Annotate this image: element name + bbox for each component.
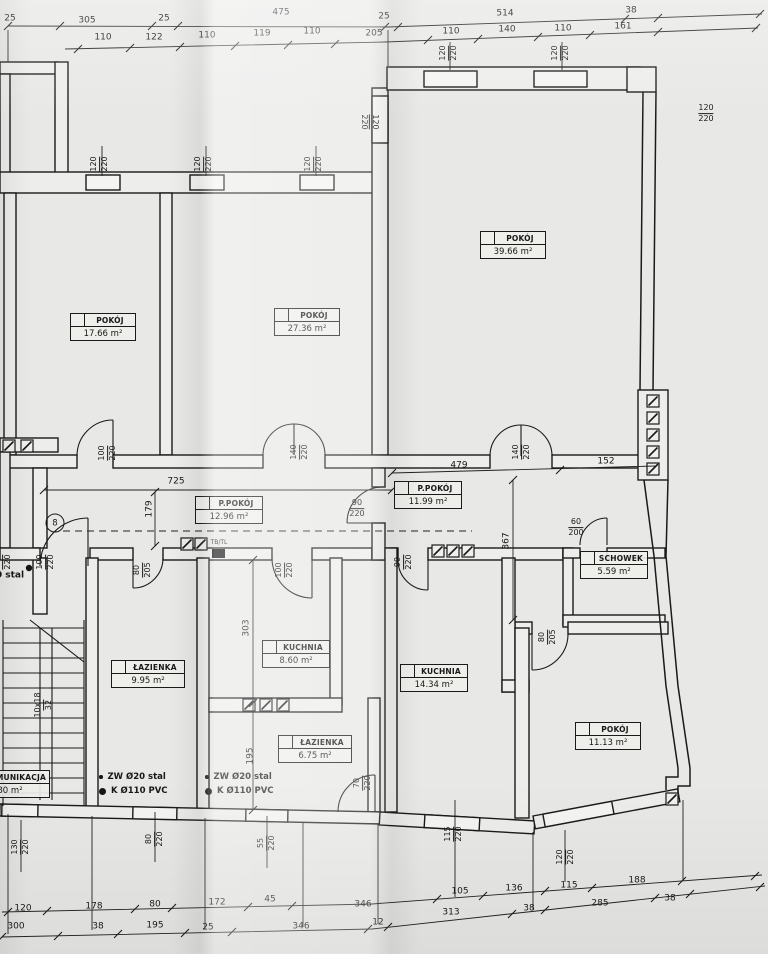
opening-height: 220 (404, 554, 414, 569)
room-name: POKÓJ (590, 723, 640, 735)
dimension-label: 38 (625, 7, 636, 16)
opening-height: 220 (46, 554, 56, 569)
opening-width: 120 (551, 43, 560, 62)
dimension-label: 105 (451, 888, 468, 897)
legend-item: ZW Ø20 stal (205, 770, 274, 784)
room-label-corner-cell (395, 482, 409, 494)
opening-width: 60 (569, 518, 583, 527)
opening-width: 120 (370, 112, 379, 131)
pipe-legend: ZW Ø20 stalK Ø110 PVC (99, 770, 168, 798)
opening-height: 220 (100, 156, 110, 171)
dimension-label: 122 (145, 34, 162, 43)
opening-size-label: 80205 (133, 562, 153, 577)
dimension-label: 161 (614, 23, 631, 32)
dimension-label: 475 (272, 9, 289, 18)
room-label-corner-cell (576, 723, 590, 735)
dimension-label: 313 (442, 909, 459, 918)
room-label-corner-cell (275, 309, 289, 321)
opening-width: 130 (11, 837, 20, 856)
room-label: ŁAZIENKA6.75 m² (278, 735, 352, 763)
room-name: POKÓJ (289, 309, 339, 321)
opening-height: 220 (561, 45, 571, 60)
dimension-label: 45 (264, 896, 275, 905)
opening-size-label: 130220 (11, 837, 31, 856)
room-label: KOMUNIKACJA80 m² (0, 770, 50, 798)
room-name: ŁAZIENKA (293, 736, 351, 748)
legend-item: ZW Ø20 stal (99, 770, 168, 784)
opening-size-label: 100220 (36, 552, 56, 571)
opening-height: 220 (300, 444, 310, 459)
opening-height: 32 (44, 700, 54, 710)
dimension-label: 367 (503, 532, 512, 549)
dimension-label: 110 (554, 25, 571, 34)
dimension-label: 25 (4, 15, 15, 24)
opening-size-label: 70220 (353, 775, 373, 790)
legend-text: K Ø110 PVC (217, 786, 274, 796)
dimension-label: 38 (523, 905, 534, 914)
dimension-label: 303 (243, 619, 252, 636)
opening-size-label: 140220 (290, 442, 310, 461)
dimension-label: 25 (378, 13, 389, 22)
opening-width: 120 (90, 154, 99, 173)
room-label: SCHOWEK5.59 m² (580, 551, 648, 579)
opening-height: 220 (204, 156, 214, 171)
opening-size-label: 120220 (551, 43, 571, 62)
legend-text: ZW Ø20 stal (214, 772, 272, 782)
room-area: 39.66 m² (481, 245, 545, 258)
opening-width: 115 (444, 824, 453, 843)
opening-height: 205 (548, 629, 558, 644)
opening-size-label: 140220 (512, 442, 532, 461)
opening-size-label: 120220 (696, 104, 715, 124)
room-label: P.POKÓJ11.99 m² (394, 481, 462, 509)
room-area: 80 m² (0, 784, 49, 797)
room-label-corner-cell (112, 661, 126, 673)
dimension-label: 346 (354, 901, 371, 910)
room-area: 27.36 m² (275, 322, 339, 335)
opening-size-label: 120220 (439, 43, 459, 62)
room-label: POKÓJ17.66 m² (70, 313, 136, 341)
opening-height: 220 (359, 114, 369, 129)
legend-bullet-icon (205, 788, 212, 795)
opening-width: 80 (145, 832, 154, 846)
opening-size-label: 80205 (538, 629, 558, 644)
dimension-label: 119 (253, 30, 270, 39)
opening-height: 220 (108, 445, 118, 460)
room-label-corner-cell (481, 232, 495, 244)
opening-size-label: 100220 (98, 443, 118, 462)
dimension-label: 479 (450, 462, 467, 471)
room-area: 8.60 m² (263, 654, 329, 667)
legend-text: K Ø110 PVC (111, 786, 168, 796)
dimension-label: 38 (664, 895, 675, 904)
opening-width: 80 (538, 630, 547, 644)
room-area: 14.34 m² (401, 678, 467, 691)
room-area: 9.95 m² (112, 674, 184, 687)
opening-height: 220 (363, 775, 373, 790)
legend-item: K Ø110 PVC (205, 784, 274, 798)
opening-width: 120 (194, 154, 203, 173)
opening-width: 100 (98, 443, 107, 462)
room-label: ŁAZIENKA9.95 m² (111, 660, 185, 688)
opening-width: 80 (133, 563, 142, 577)
opening-height: 220 (155, 831, 165, 846)
stair-step-note: 10x1832 (34, 690, 54, 719)
dimension-label: 80 (149, 901, 160, 910)
room-name: ŁAZIENKA (126, 661, 184, 673)
opening-width: 120 (304, 154, 313, 173)
dimension-label: 346 (292, 923, 309, 932)
opening-height: 220 (454, 826, 464, 841)
opening-size-label: 60200 (568, 518, 583, 538)
dimension-label: 305 (78, 17, 95, 26)
room-label-corner-cell (263, 641, 277, 653)
opening-width: 55 (257, 836, 266, 850)
room-label: POKÓJ39.66 m² (480, 231, 546, 259)
room-name: P.POKÓJ (409, 482, 461, 494)
opening-size-label: 90220 (349, 499, 364, 519)
labels-layer: POKÓJ17.66 m²POKÓJ27.36 m²POKÓJ39.66 m²P… (0, 0, 768, 954)
opening-size-label: 120220 (194, 154, 214, 173)
legend-bullet-icon (99, 775, 103, 779)
room-area: 12.96 m² (196, 510, 262, 523)
room-label: KUCHNIA8.60 m² (262, 640, 330, 668)
room-label: P.POKÓJ12.96 m² (195, 496, 263, 524)
opening-height: 220 (449, 45, 459, 60)
opening-width: 100 (275, 560, 284, 579)
room-name: POKÓJ (85, 314, 135, 326)
opening-height: 220 (314, 156, 324, 171)
room-label-corner-cell (196, 497, 210, 509)
dimension-label: 110 (94, 34, 111, 43)
dimension-label: 152 (597, 458, 614, 467)
dimension-label: 140 (498, 26, 515, 35)
opening-height: 220 (349, 509, 364, 519)
pipe-legend: ZW Ø20 stalK Ø110 PVC (205, 770, 274, 798)
dimension-label: 188 (628, 877, 645, 886)
dimension-label: 25 (158, 15, 169, 24)
room-name: KUCHNIA (415, 665, 467, 677)
opening-size-label: 120220 (359, 112, 379, 131)
opening-width: 100 (36, 552, 45, 571)
room-name: P.POKÓJ (210, 497, 262, 509)
room-area: 11.13 m² (576, 736, 640, 749)
dimension-label: 725 (167, 478, 184, 487)
room-area: 17.66 m² (71, 327, 135, 340)
opening-width: 120 (696, 104, 715, 113)
opening-height: 220 (267, 835, 277, 850)
opening-height: 200 (568, 528, 583, 538)
opening-size-label: 120220 (556, 847, 576, 866)
opening-width: 140 (512, 442, 521, 461)
room-area: 5.59 m² (581, 565, 647, 578)
opening-size-label: 80220 (145, 831, 165, 846)
dimension-label: 179 (146, 500, 155, 517)
dimension-label: 205 (365, 30, 382, 39)
opening-width: 10x18 (34, 690, 43, 719)
opening-width: 70 (353, 776, 362, 790)
dimension-label: 12 (372, 919, 383, 928)
opening-height: 220 (698, 114, 713, 124)
dimension-label: 110 (442, 28, 459, 37)
room-name: KOMUNIKACJA (0, 771, 49, 783)
opening-height: 220 (21, 839, 31, 854)
opening-height: 220 (566, 849, 576, 864)
opening-height: 220 (522, 444, 532, 459)
dimension-label: 110 (303, 28, 320, 37)
opening-width: 120 (439, 43, 448, 62)
dimension-label: 285 (591, 900, 608, 909)
room-name: POKÓJ (495, 232, 545, 244)
axis-marker: 8 (46, 514, 65, 533)
opening-size-label: 120220 (304, 154, 324, 173)
dimension-label: 172 (208, 899, 225, 908)
dimension-label: 110 (198, 32, 215, 41)
annotation-note: Ø50 stal (0, 572, 24, 581)
opening-size-label: 100220 (0, 552, 13, 571)
room-name: KUCHNIA (277, 641, 329, 653)
dimension-label: 136 (505, 885, 522, 894)
opening-size-label: 120220 (90, 154, 110, 173)
opening-width: 120 (556, 847, 565, 866)
opening-width: 90 (394, 555, 403, 569)
room-label: KUCHNIA14.34 m² (400, 664, 468, 692)
dimension-label: 195 (146, 922, 163, 931)
dimension-label: 115 (560, 882, 577, 891)
opening-size-label: 90220 (394, 554, 414, 569)
dimension-label: 300 (7, 923, 24, 932)
room-label: POKÓJ27.36 m² (274, 308, 340, 336)
room-area: 11.99 m² (395, 495, 461, 508)
dimension-label: 120 (14, 905, 31, 914)
legend-item: K Ø110 PVC (99, 784, 168, 798)
room-area: 6.75 m² (279, 749, 351, 762)
dimension-label: 38 (92, 923, 103, 932)
room-label-corner-cell (279, 736, 293, 748)
annotation-note: TB/TL (211, 540, 228, 546)
opening-height: 220 (285, 562, 295, 577)
opening-size-label: 55220 (257, 835, 277, 850)
dimension-label: 514 (496, 10, 513, 19)
opening-size-label: 115220 (444, 824, 464, 843)
opening-size-label: 100220 (275, 560, 295, 579)
legend-bullet-icon (99, 788, 106, 795)
room-label: POKÓJ11.13 m² (575, 722, 641, 750)
opening-width: 140 (290, 442, 299, 461)
dimension-label: 25 (202, 924, 213, 933)
room-name: SCHOWEK (595, 552, 647, 564)
floorplan-page: POKÓJ17.66 m²POKÓJ27.36 m²POKÓJ39.66 m²P… (0, 0, 768, 954)
opening-height: 220 (3, 554, 13, 569)
opening-height: 205 (143, 562, 153, 577)
dimension-label: 178 (85, 903, 102, 912)
room-label-corner-cell (581, 552, 595, 564)
legend-bullet-icon (205, 775, 209, 779)
legend-text: ZW Ø20 stal (108, 772, 166, 782)
room-label-corner-cell (401, 665, 415, 677)
opening-width: 90 (350, 499, 364, 508)
room-label-corner-cell (71, 314, 85, 326)
dimension-label: 195 (247, 747, 256, 764)
